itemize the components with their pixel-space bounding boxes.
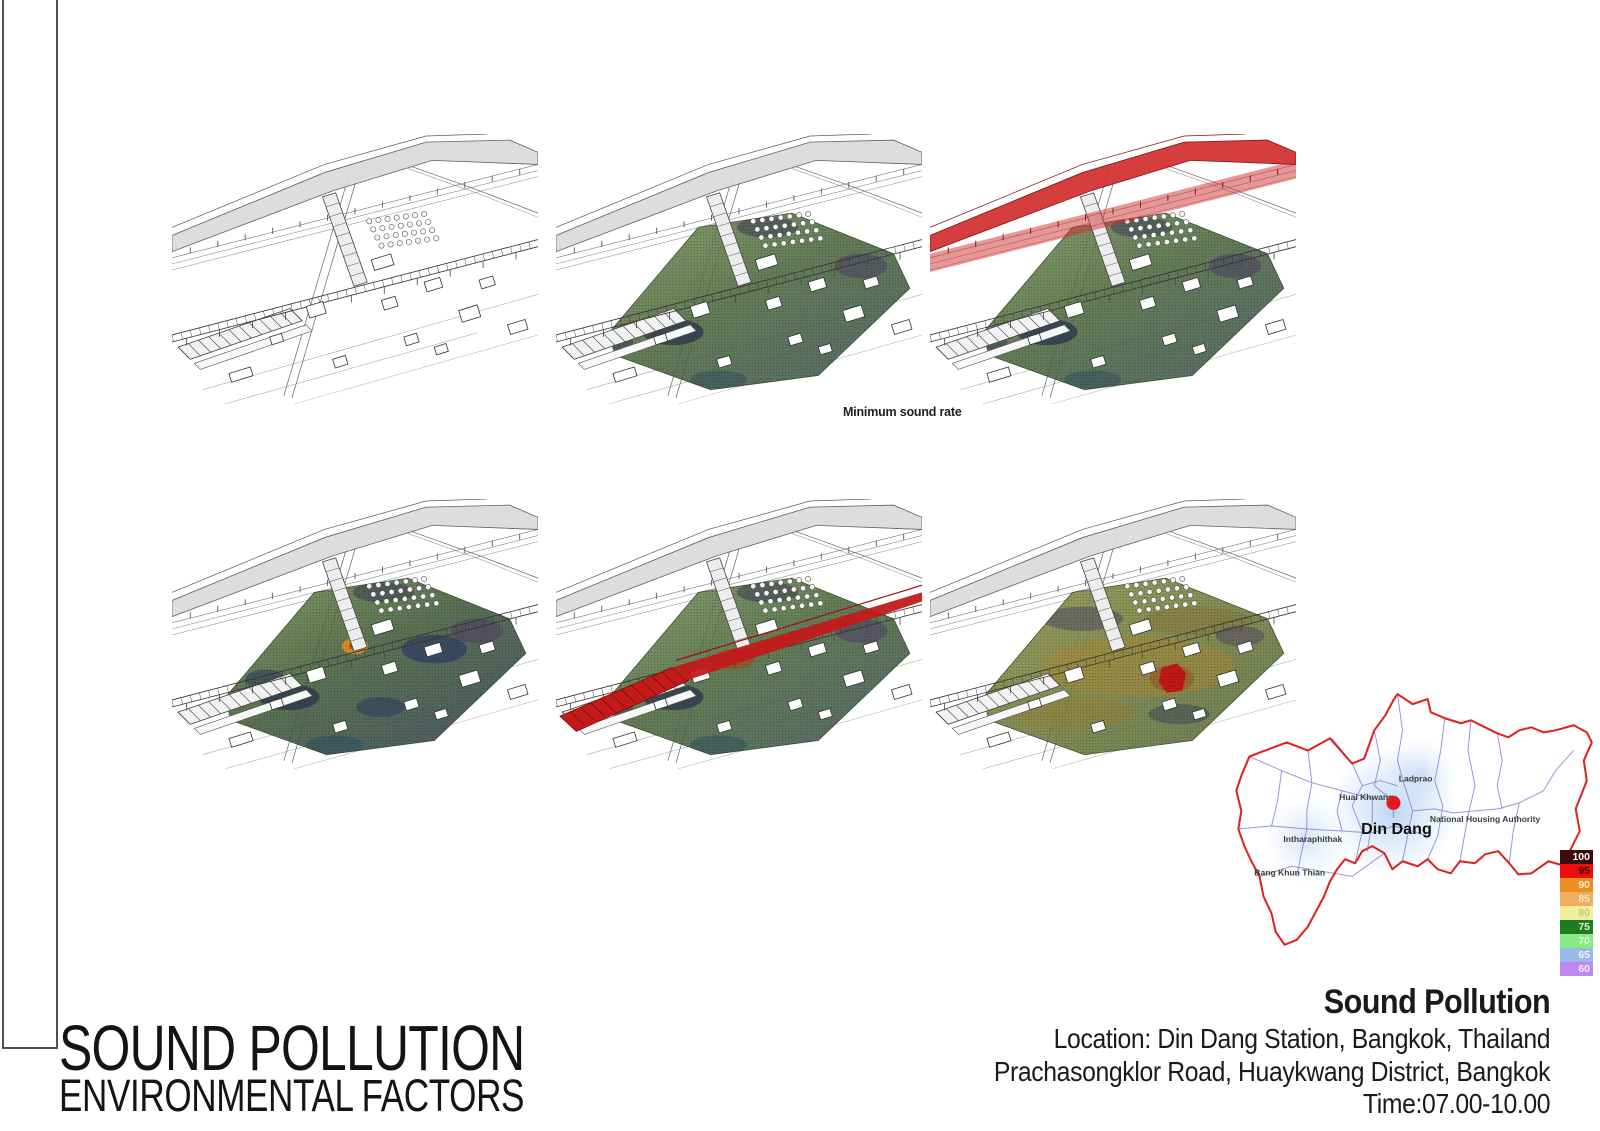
page-subtitle: ENVIRONMENTAL FACTORS	[59, 1075, 524, 1117]
map-label: Intharaphithak	[1283, 834, 1342, 844]
info-title: Sound Pollution	[994, 982, 1550, 1023]
legend-item-70: 70	[1560, 934, 1593, 948]
din-dang-marker-icon	[1386, 796, 1400, 810]
left-margin-strip	[2, 0, 58, 1049]
info-time-line: Time:07.00-10.00	[994, 1088, 1550, 1120]
site-drawing-railway-noise	[556, 499, 922, 773]
legend-item-65: 65	[1560, 948, 1593, 962]
legend-item-60: 60	[1560, 962, 1593, 976]
info-block: Sound Pollution Location: Din Dang Stati…	[994, 982, 1550, 1121]
legend-item-90: 90	[1560, 878, 1593, 892]
minimum-sound-rate-caption: Minimum sound rate	[843, 405, 962, 419]
map-label: Bang Khun Thian	[1254, 867, 1325, 877]
bangkok-district-map: LadpraoHuai KhwangNational Housing Autho…	[1205, 686, 1600, 968]
legend-item-95: 95	[1560, 864, 1593, 878]
map-label: Ladprao	[1399, 774, 1433, 784]
info-road-line: Prachasongklor Road, Huaykwang District,…	[994, 1056, 1550, 1088]
page-title: SOUND POLLUTION	[59, 1018, 524, 1078]
site-drawing-baseline	[172, 134, 538, 408]
site-drawing-expressway-noise	[930, 134, 1296, 408]
din-dang-label: Din Dang	[1361, 820, 1432, 838]
legend-item-80: 80	[1560, 906, 1593, 920]
map-label: Huai Khwang	[1339, 792, 1393, 802]
legend-item-75: 75	[1560, 920, 1593, 934]
legend-item-85: 85	[1560, 892, 1593, 906]
presentation-board: Minimum sound rate LadpraoHuai KhwangNat…	[0, 0, 1600, 1131]
map-label: National Housing Authority	[1430, 814, 1541, 824]
site-drawing-minimum-sound	[556, 134, 922, 408]
sound-level-legend: 1009590858075706560	[1560, 850, 1593, 976]
info-location-line: Location: Din Dang Station, Bangkok, Tha…	[994, 1023, 1550, 1055]
legend-item-100: 100	[1560, 850, 1593, 864]
title-block: SOUND POLLUTION ENVIRONMENTAL FACTORS	[59, 1018, 656, 1117]
site-drawing-ambient-noise	[172, 499, 538, 773]
